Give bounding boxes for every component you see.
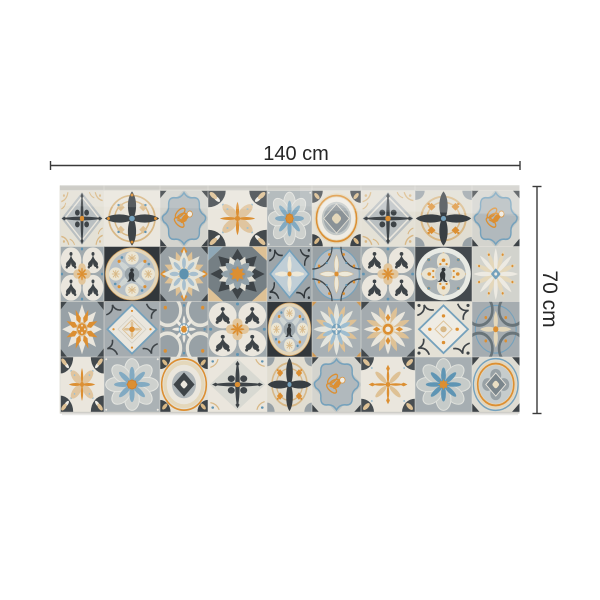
svg-text:140 cm: 140 cm xyxy=(263,143,329,165)
svg-text:70 cm: 70 cm xyxy=(538,270,561,327)
